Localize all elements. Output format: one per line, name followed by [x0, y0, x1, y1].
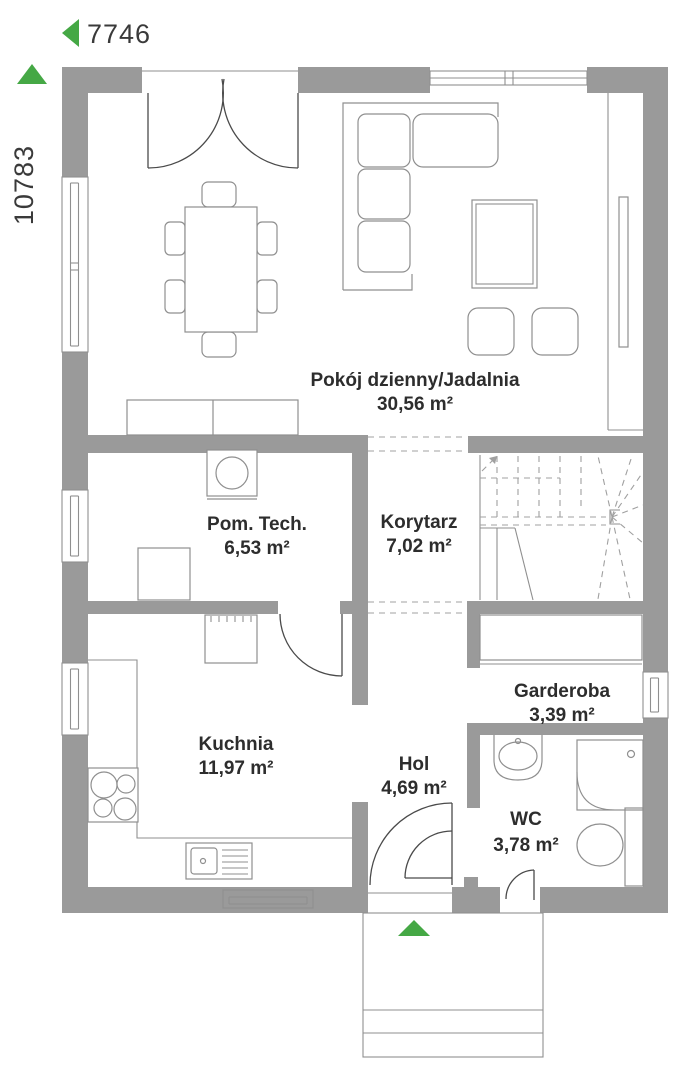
window-pomtech — [62, 490, 88, 562]
floor-plan-page: 7746 10783 Pokój dzienny/Jadalnia 30,56 … — [0, 0, 698, 1080]
chair — [257, 222, 277, 255]
room-label-kuchnia: Kuchnia 11,97 m² — [199, 734, 274, 779]
staircase — [480, 455, 643, 600]
wall-living-south-right — [468, 436, 643, 453]
pouf-right — [532, 308, 578, 355]
garderoba-furniture — [480, 615, 642, 664]
svg-text:7,02 m²: 7,02 m² — [386, 536, 451, 557]
wall-bottom-right — [540, 887, 668, 913]
coffee-table — [472, 200, 537, 288]
fridge — [205, 615, 257, 663]
svg-text:Pom. Tech.: Pom. Tech. — [207, 514, 307, 535]
svg-text:4,69 m²: 4,69 m² — [381, 778, 446, 799]
wall-bottom-pillar — [452, 887, 500, 913]
wall-left-1 — [62, 67, 88, 177]
dim-arrow-up-icon — [17, 64, 47, 84]
svg-text:Hol: Hol — [399, 754, 430, 775]
svg-text:30,56 m²: 30,56 m² — [377, 394, 453, 415]
dining-set — [165, 182, 277, 357]
chair — [202, 182, 236, 207]
svg-text:3,39 m²: 3,39 m² — [529, 705, 594, 726]
chair — [165, 280, 185, 313]
dim-width-label: 7746 — [87, 19, 151, 49]
porch — [363, 913, 543, 1057]
wall-kitchen-east-lower — [352, 802, 368, 887]
entrance-arrow-icon — [398, 920, 430, 936]
washing-machine — [207, 450, 257, 499]
chair — [257, 280, 277, 313]
wall-kitchen-north — [88, 601, 278, 614]
wall-kitchen-north-stub — [340, 601, 368, 614]
corner-sofa — [343, 103, 498, 290]
svg-text:3,78 m²: 3,78 m² — [493, 835, 558, 856]
room-label-pomtech: Pom. Tech. 6,53 m² — [207, 514, 307, 559]
room-label-korytarz: Korytarz 7,02 m² — [380, 512, 457, 557]
wc-sink — [494, 735, 542, 780]
wall-left-3 — [62, 562, 88, 663]
wall-garderoba-west — [467, 614, 480, 668]
svg-text:6,53 m²: 6,53 m² — [224, 538, 289, 559]
toilet — [577, 808, 643, 886]
wall-left-4 — [62, 735, 88, 913]
tv-bench — [608, 93, 643, 430]
wall-bottom-left — [62, 887, 368, 913]
dim-height-label: 10783 — [9, 145, 39, 225]
dim-arrow-left-icon — [62, 19, 79, 47]
chair — [165, 222, 185, 255]
pouf-left — [468, 308, 514, 355]
room-label-hol: Hol 4,69 m² — [381, 754, 446, 799]
entrance-door — [368, 803, 452, 893]
door-pomtech — [280, 614, 342, 676]
wall-stairs-south — [467, 601, 643, 614]
svg-text:11,97 m²: 11,97 m² — [199, 758, 274, 779]
svg-text:Kuchnia: Kuchnia — [199, 734, 274, 755]
wall-pillar-bump — [464, 877, 478, 887]
dining-table — [185, 207, 257, 332]
svg-text:Korytarz: Korytarz — [380, 512, 457, 533]
wc-door — [506, 870, 534, 900]
wall-top-mid — [298, 67, 430, 93]
wardrobe — [480, 615, 642, 660]
window-dining — [62, 177, 88, 352]
room-label-living: Pokój dzienny/Jadalnia 30,56 m² — [310, 370, 519, 415]
window-living-top — [430, 71, 587, 85]
shower — [577, 740, 643, 810]
boiler — [138, 548, 190, 600]
room-label-wc: WC 3,78 m² — [493, 809, 558, 856]
chair — [202, 332, 236, 357]
wall-right-2 — [643, 718, 668, 913]
wall-right-1 — [643, 67, 668, 672]
svg-text:Pokój dzienny/Jadalnia: Pokój dzienny/Jadalnia — [310, 370, 519, 391]
svg-text:WC: WC — [510, 809, 542, 830]
wall-wc-west — [467, 735, 480, 808]
floor-plan: 7746 10783 Pokój dzienny/Jadalnia 30,56 … — [0, 0, 698, 1080]
window-garderoba — [643, 672, 668, 718]
svg-text:Garderoba: Garderoba — [514, 681, 611, 702]
french-door — [142, 71, 298, 168]
porch-outline — [363, 913, 543, 1057]
wall-pomtech-east — [352, 435, 368, 705]
window-kitchen-left — [62, 663, 88, 735]
kitchen-sink — [186, 843, 252, 879]
wall-left-2 — [62, 352, 88, 490]
room-label-garderoba: Garderoba 3,39 m² — [514, 681, 611, 726]
tv — [619, 197, 628, 347]
stove — [88, 768, 138, 822]
sideboard — [127, 400, 298, 435]
